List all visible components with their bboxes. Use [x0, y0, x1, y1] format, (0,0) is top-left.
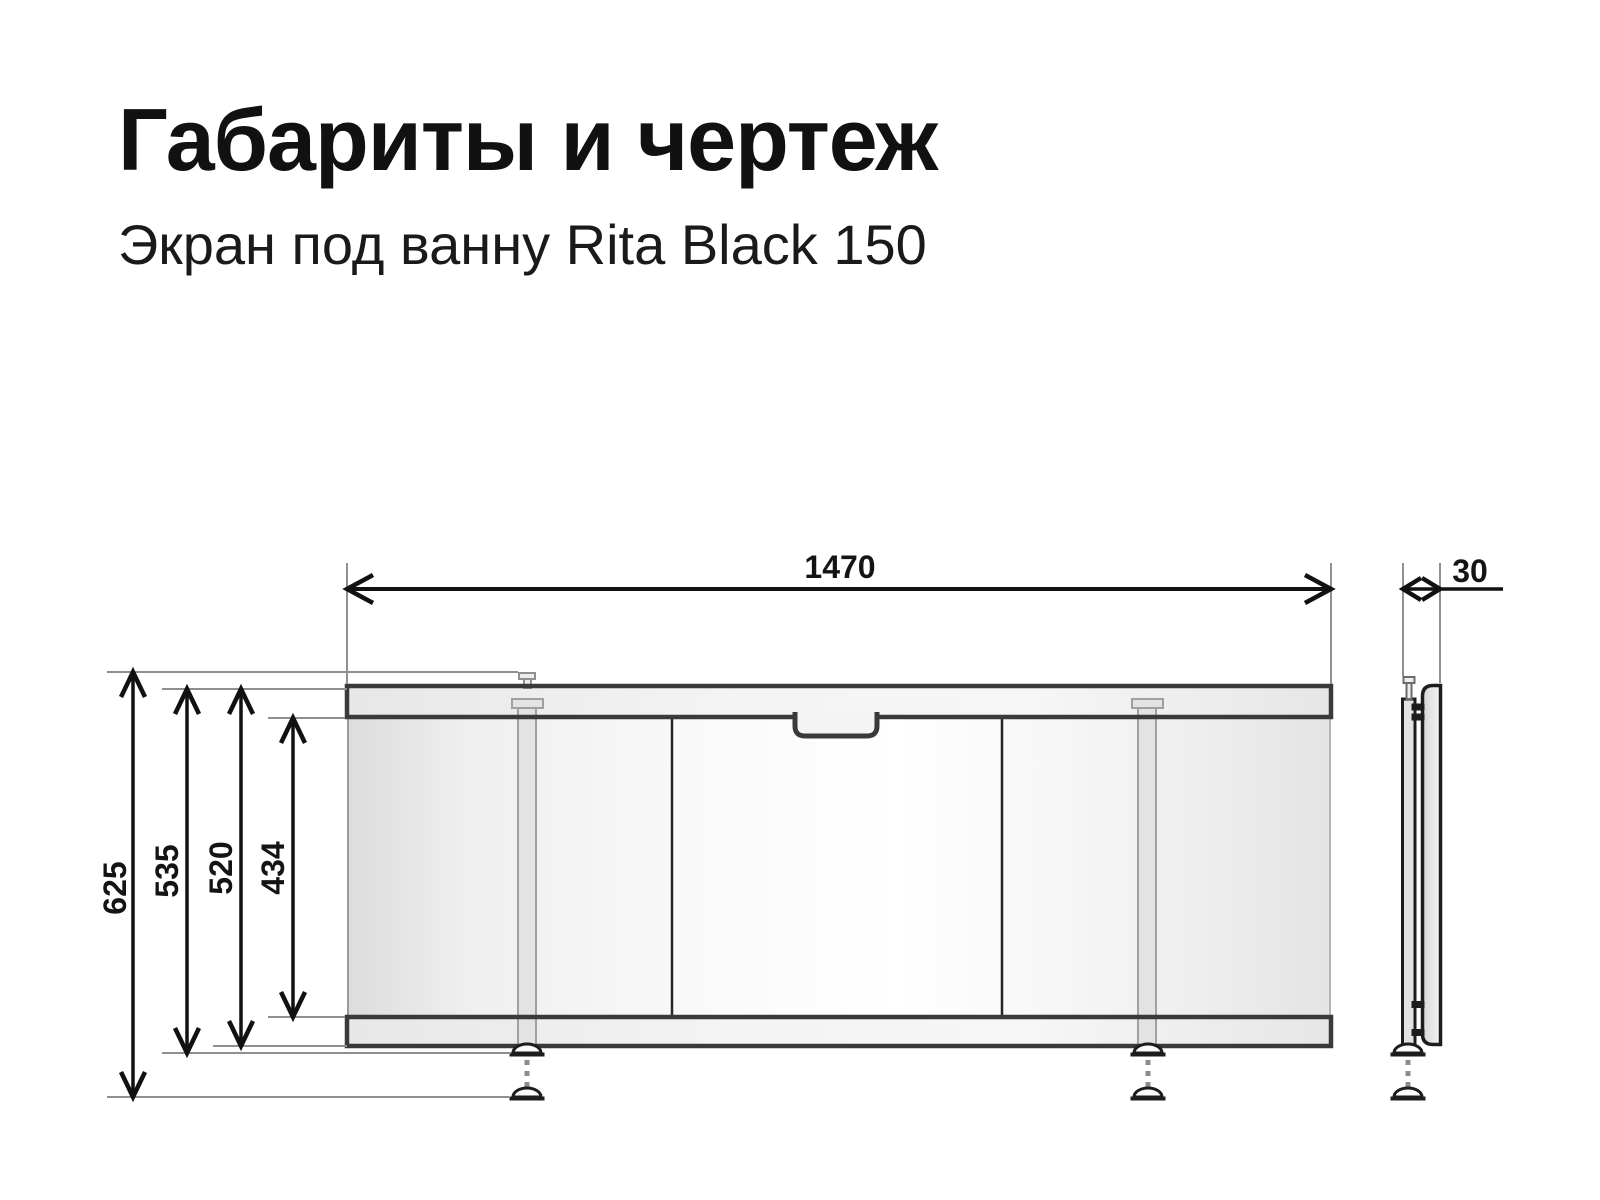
dim-label-height-to-foot: 535	[149, 844, 185, 897]
left-foot	[510, 1044, 545, 1099]
dimension-height-to-foot: 535	[149, 689, 199, 1053]
dimension-width: 1470	[347, 549, 1331, 603]
side-leg-profile	[1403, 699, 1416, 1047]
front-view	[347, 673, 1331, 1099]
panel-fill	[347, 717, 1331, 1017]
handle-cutout	[795, 712, 877, 736]
side-panel-profile	[1423, 686, 1441, 1045]
bottom-rail-fill	[347, 1017, 1331, 1046]
dimension-height-overall: 625	[97, 672, 145, 1097]
dim-label-height-panel: 434	[255, 841, 291, 895]
dim-label-depth: 30	[1452, 553, 1488, 589]
dimension-depth: 30	[1403, 553, 1503, 600]
dim-label-width: 1470	[804, 549, 875, 585]
dimension-height-screen: 520	[203, 689, 253, 1046]
side-view	[1391, 677, 1441, 1099]
dim-label-height-screen: 520	[203, 841, 239, 894]
right-foot	[1131, 1044, 1166, 1099]
page: { "page": { "title": "Габариты и чертеж"…	[0, 0, 1600, 1200]
dimension-height-panel: 434	[255, 718, 305, 1017]
dim-label-height-overall: 625	[97, 861, 133, 914]
technical-drawing: 1470 30 625 535 520 434	[0, 0, 1600, 1200]
side-screw	[1404, 677, 1415, 699]
side-foot	[1391, 1044, 1426, 1099]
